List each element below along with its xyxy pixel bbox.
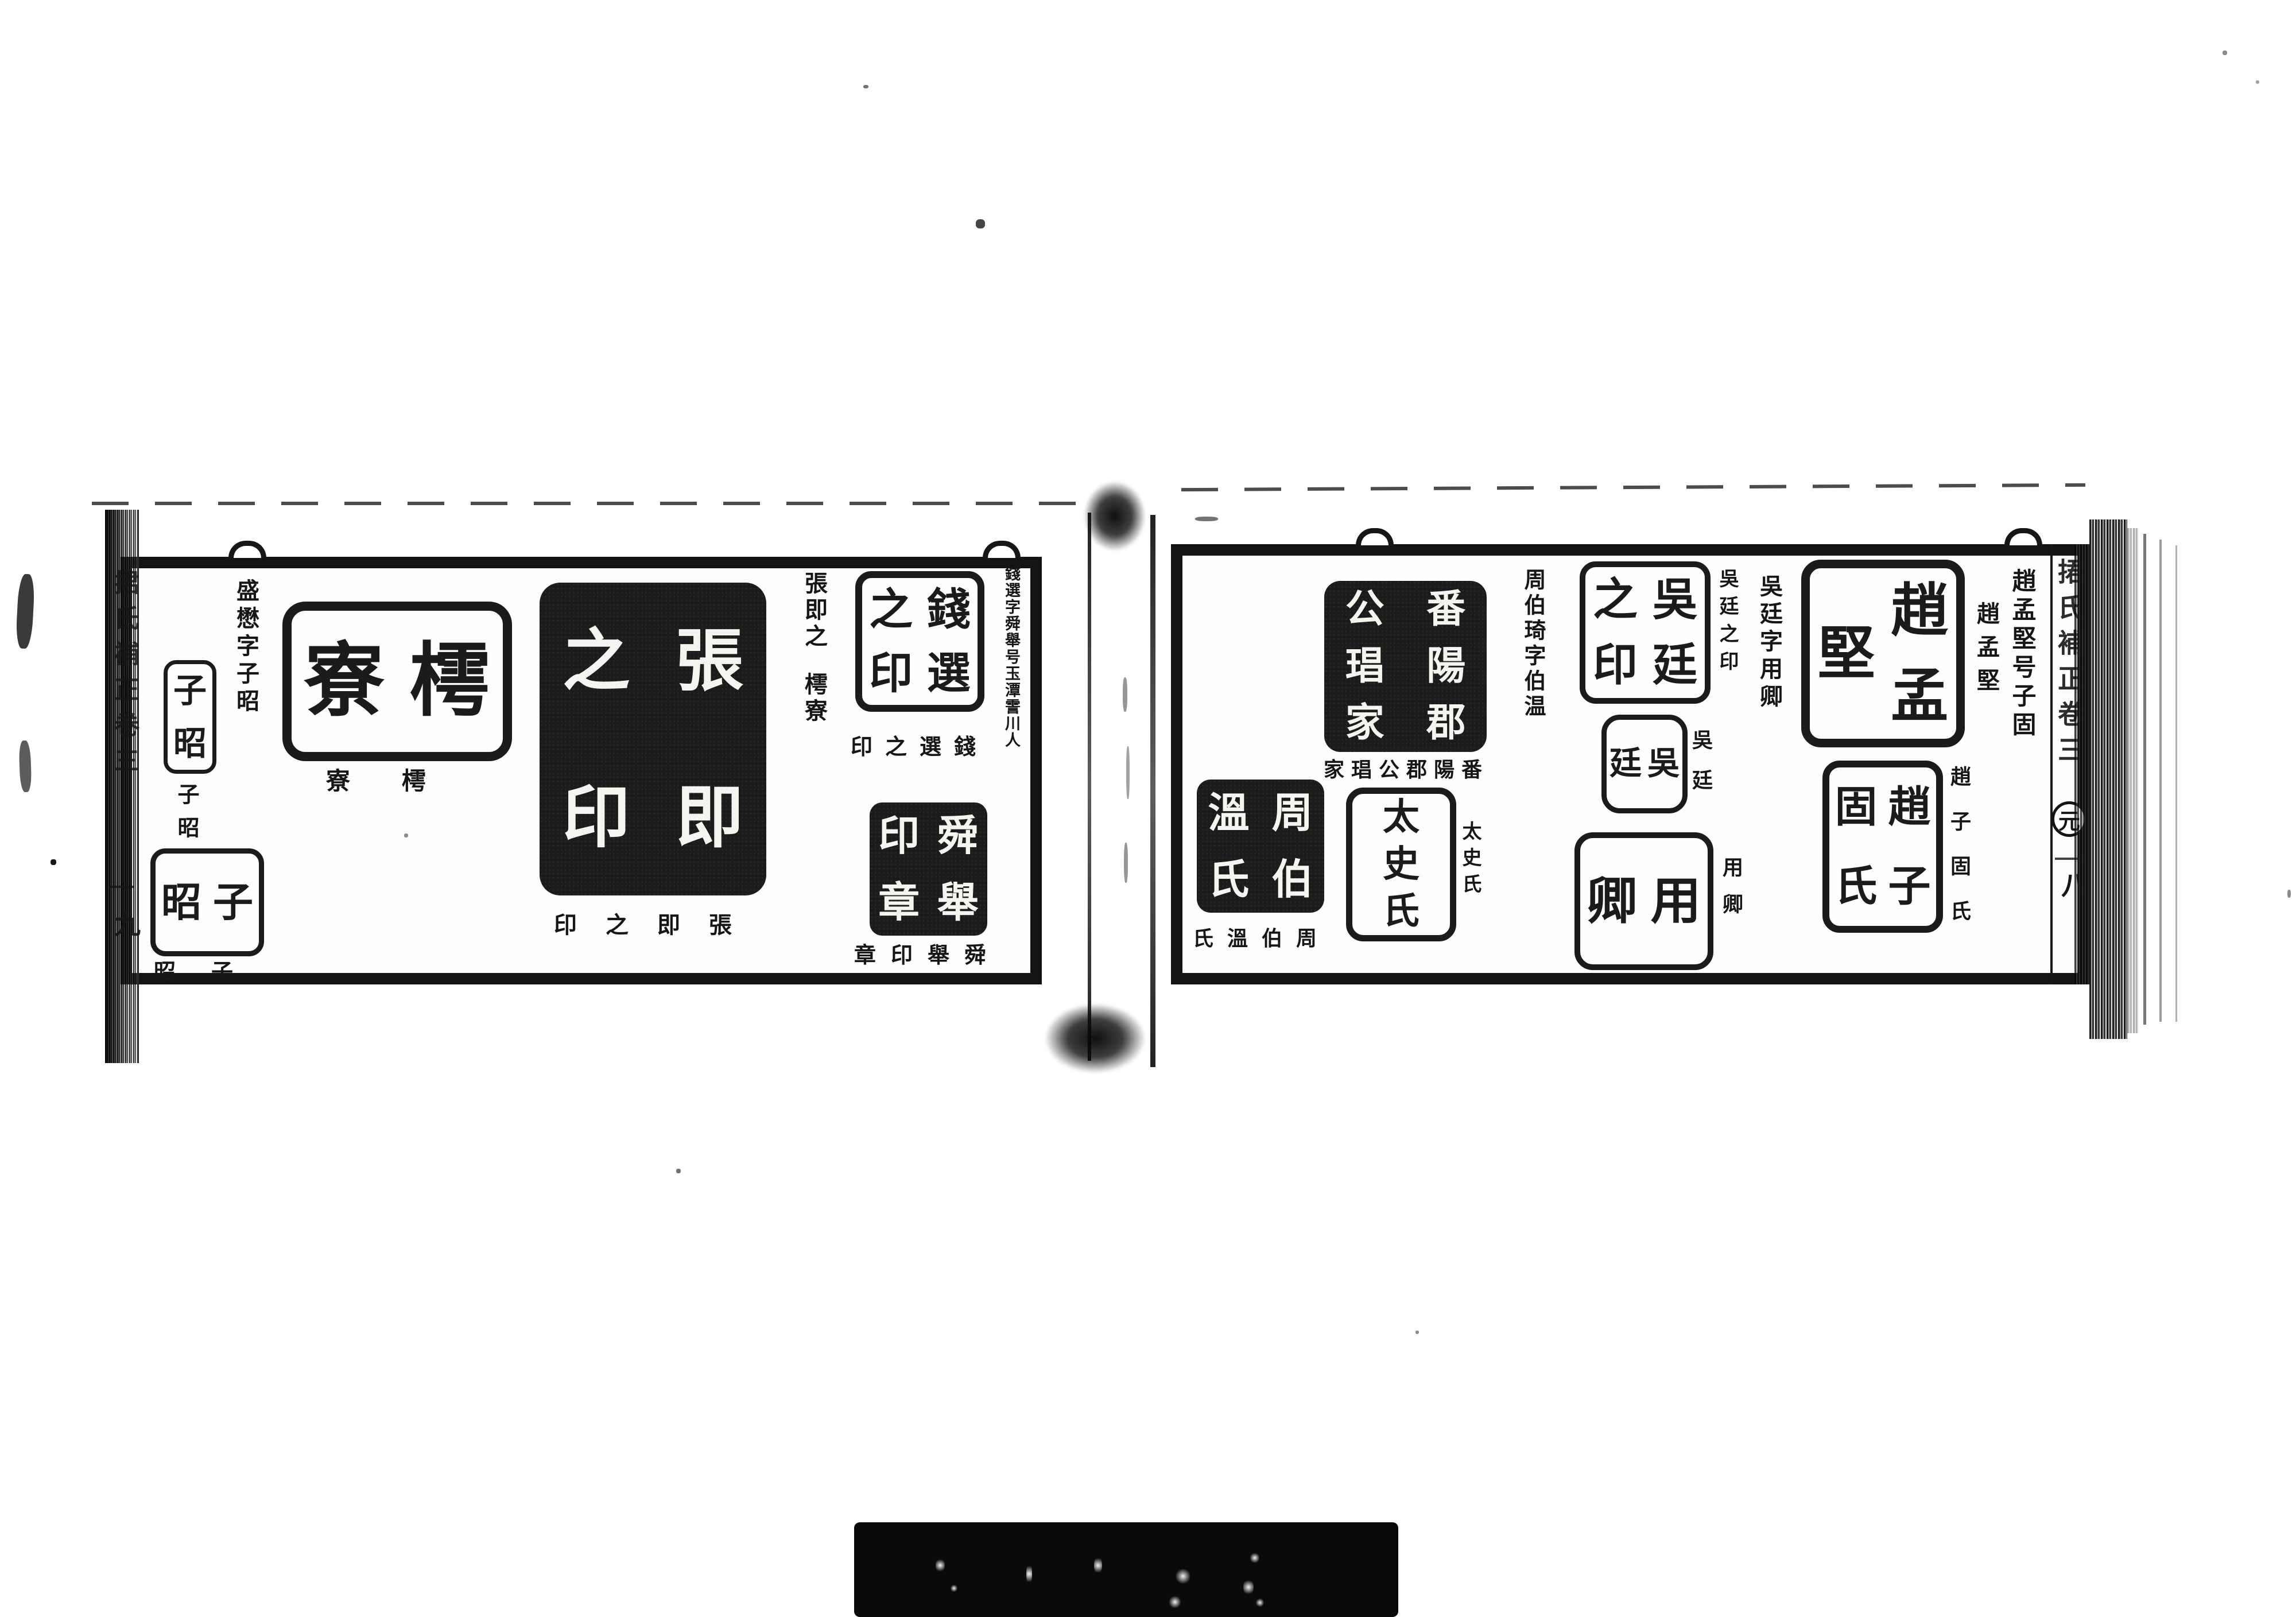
seal-face-column: 印章	[870, 802, 929, 936]
left-page-tab-notch-2	[983, 541, 1021, 558]
seal-face-glyph: 史	[1383, 846, 1420, 883]
seal-yong-qing: 用卿	[1574, 832, 1713, 970]
seal-face-glyph: 選	[927, 652, 971, 695]
seal-face-glyph: 廷	[1653, 643, 1697, 688]
seal-face-column: 公琩家	[1324, 581, 1406, 752]
seal-tai-shi-shi: 太史氏	[1346, 788, 1456, 941]
seal-face-glyph: 伯	[1271, 859, 1313, 900]
seal-face-column: 廷	[1607, 720, 1645, 808]
note-qian-xuan: 錢選字舜舉号玉潭霅川人	[1003, 565, 1019, 749]
seal-face-glyph: 公	[1345, 590, 1384, 629]
seal-wu-ting: 吳廷	[1601, 715, 1688, 813]
scan-speck	[863, 85, 868, 88]
note-zhang-jizhi: 張即之樗寮	[802, 571, 825, 725]
gutter-fold-line-right	[1150, 515, 1155, 1067]
right-page-tab-notch-2	[2004, 528, 2042, 545]
seal-face-glyph: 吳	[1653, 577, 1697, 622]
underleaf-edge-1	[2143, 534, 2146, 1025]
seal-face-column: 趙子	[1883, 767, 1936, 926]
caption-zi-zhao-tall: 子昭	[176, 783, 197, 850]
gutter-smudge-1	[1123, 677, 1127, 712]
seal-face-glyph: 孟	[1891, 668, 1948, 725]
seal-face-glyph: 舉	[937, 882, 979, 923]
seal-face-glyph: 錢	[927, 588, 971, 631]
gutter-smudge-2	[1126, 746, 1130, 799]
seal-face-column: 樗	[397, 611, 503, 752]
caption-zhou-bowen-shi: 氏溫伯周	[1193, 929, 1331, 949]
seal-zi-zhao-tall: 子昭	[164, 660, 216, 774]
seal-face-glyph: 郡	[1426, 704, 1465, 743]
seal-fanyang-jungong-jia: 番陽郡公琩家	[1324, 581, 1487, 752]
seal-face-column: 昭	[156, 854, 207, 951]
seal-face-glyph: 印	[563, 784, 630, 851]
seal-face-glyph: 廷	[1609, 748, 1642, 780]
seal-face-glyph: 印	[869, 652, 913, 695]
scan-speck	[1195, 517, 1218, 521]
seal-face-glyph: 樗	[410, 641, 490, 722]
caption-zhang-jizhi-yin: 印之即張	[554, 914, 755, 937]
seal-face-glyph: 氏	[1208, 859, 1249, 900]
seal-face-glyph: 之	[1593, 577, 1638, 622]
note-zhang-jizhi-name: 張即之	[801, 571, 827, 650]
note-zhou-boqi: 周伯琦字伯温	[1522, 568, 1544, 720]
caption-wu-ting-zhi-yin: 吳廷之印	[1717, 568, 1737, 678]
seal-face-glyph: 張	[676, 627, 743, 695]
caption-chu-liao: 寮樗	[321, 769, 482, 793]
seal-face-column: 子昭	[168, 664, 212, 770]
seal-face-glyph: 用	[1650, 876, 1701, 926]
note-sheng-mao: 盛懋字子昭	[234, 579, 257, 716]
seal-face-column: 之印	[540, 583, 653, 895]
seal-face-column: 溫氏	[1197, 780, 1261, 913]
label-bar-speck	[1256, 1598, 1264, 1607]
seal-face-glyph: 周	[1271, 792, 1313, 833]
seal-face-column: 張即	[653, 583, 767, 895]
gutter-shadow-over-strip	[2074, 544, 2089, 984]
seal-face-glyph: 舜	[937, 815, 979, 856]
underleaf-edge-3	[2175, 545, 2177, 1022]
seal-face-column: 吳	[1645, 720, 1682, 808]
label-bar-speck	[1094, 1556, 1102, 1575]
seal-face-glyph: 子	[213, 882, 253, 922]
seal-face-glyph: 固	[1835, 786, 1878, 828]
caption-zi-zhao-square: 昭子	[154, 961, 269, 983]
seal-face-glyph: 昭	[173, 727, 207, 760]
seal-face-column: 寮	[292, 611, 397, 752]
gutter-ink-blob-bottom	[1045, 1003, 1146, 1073]
seal-face-column: 趙孟	[1883, 568, 1957, 739]
seal-face-column: 之印	[1585, 567, 1645, 698]
seal-face-column: 太史氏	[1352, 794, 1450, 935]
seal-face-column: 卿	[1580, 838, 1644, 964]
seal-face-glyph: 寮	[304, 641, 385, 722]
caption-qian-xuan-zhi-yin: 印之選錢	[851, 736, 988, 758]
caption-fanyang-jungong-jia: 家琩公郡陽番	[1320, 760, 1492, 781]
note-wu-ting: 吳廷字用卿	[1758, 574, 1781, 712]
seal-zhou-bowen-shi: 周伯溫氏	[1197, 780, 1324, 913]
label-bar-speck	[951, 1584, 957, 1592]
bottom-label-bar	[854, 1522, 1398, 1617]
left-strip-divider	[109, 886, 134, 888]
caption-zhao-mengjian: 趙孟堅	[1975, 602, 1998, 701]
seal-album-scan: 捃氏補正卷三 九 錢選字舜舉号玉潭霅川人 錢選之印 印之選錢 舜舉印章 章印舉舜…	[0, 0, 2296, 1617]
seal-face-glyph: 之	[563, 627, 630, 695]
caption-wu-ting: 吳廷	[1690, 729, 1711, 809]
label-bar-speck	[936, 1558, 945, 1573]
seal-zhang-jizhi-yin: 張即之印	[540, 583, 766, 895]
right-strip-divider-line	[2050, 544, 2053, 984]
note-zhang-jizhi-hao: 樗寮	[802, 672, 825, 725]
seal-face-column: 子	[207, 854, 259, 951]
seal-face-glyph: 家	[1345, 704, 1384, 743]
gutter-smudge-3	[1124, 843, 1128, 883]
label-bar-speck	[1169, 1596, 1181, 1608]
seal-face-glyph: 溫	[1208, 792, 1249, 833]
seal-face-glyph: 之	[869, 588, 913, 631]
label-bar-speck	[1250, 1552, 1259, 1564]
seal-face-glyph: 陽	[1426, 647, 1465, 686]
right-binding-streaks	[2089, 519, 2127, 1039]
scan-speck	[2256, 80, 2259, 84]
scan-speck	[15, 573, 36, 649]
seal-face-glyph: 趙	[1888, 786, 1931, 828]
seal-face-glyph: 番	[1426, 590, 1465, 629]
right-page-tab-notch-1	[1356, 528, 1394, 545]
label-bar-speck	[1026, 1562, 1032, 1585]
note-zhao-mengjian: 趙孟堅号子固	[2010, 568, 2034, 740]
seal-shun-ju-yin-zhang: 舜舉印章	[870, 802, 987, 936]
seal-face-glyph: 印	[1593, 643, 1638, 688]
right-binding-streaks-light	[2127, 528, 2139, 1033]
seal-face-glyph: 堅	[1818, 625, 1875, 683]
caption-shun-ju-yin-zhang: 章印舉舜	[854, 944, 998, 966]
seal-face-glyph: 卿	[1587, 876, 1637, 926]
scan-speck	[51, 859, 56, 865]
seal-face-glyph: 趙	[1891, 582, 1948, 639]
seal-face-column: 吳廷	[1645, 567, 1705, 698]
seal-face-glyph: 子	[173, 674, 207, 707]
seal-face-glyph: 昭	[161, 882, 201, 922]
caption-tai-shi-shi: 太史氏	[1460, 821, 1480, 900]
seal-face-glyph: 吳	[1647, 748, 1680, 780]
seal-qian-xuan-zhi-yin: 錢選之印	[855, 571, 984, 712]
gutter-fold-line-left	[1088, 513, 1091, 1061]
seal-face-column: 錢選	[920, 578, 978, 705]
left-page-number: 九	[113, 910, 139, 937]
seal-face-column: 之印	[862, 578, 920, 705]
seal-face-glyph: 氏	[1835, 865, 1878, 908]
seal-face-glyph: 章	[878, 882, 920, 923]
scan-speck	[676, 1169, 681, 1173]
scan-speck	[2223, 51, 2227, 55]
seal-face-column: 用	[1644, 838, 1708, 964]
seal-wu-ting-zhi-yin: 吳廷之印	[1580, 561, 1711, 704]
leaf-edge-dashes-left	[92, 502, 1085, 505]
scan-speck	[2287, 890, 2291, 898]
scan-speck	[404, 833, 408, 837]
seal-face-glyph: 即	[676, 784, 743, 851]
seal-face-column: 舜舉	[929, 802, 988, 936]
label-bar-speck	[1176, 1568, 1190, 1584]
seal-zhao-mengjian: 趙孟堅	[1801, 560, 1965, 747]
underleaf-edge-2	[2159, 540, 2162, 1022]
caption-yong-qing: 用卿	[1720, 856, 1741, 930]
label-bar-speck	[1243, 1579, 1254, 1596]
seal-face-glyph: 印	[878, 815, 920, 856]
scan-speck	[1415, 1331, 1419, 1334]
scan-speck	[18, 740, 32, 793]
caption-zhao-zigu-shi: 趙子固氏	[1948, 766, 1969, 945]
left-running-title: 捃氏補正卷三	[111, 569, 137, 783]
gutter-ink-blob-top	[1084, 481, 1146, 551]
leaf-edge-dashes-right	[1181, 483, 2085, 491]
seal-face-glyph: 氏	[1383, 893, 1420, 930]
seal-face-glyph: 琩	[1345, 647, 1384, 686]
seal-face-glyph: 子	[1888, 865, 1931, 908]
seal-face-glyph: 太	[1383, 799, 1420, 836]
seal-face-column: 番陽郡	[1406, 581, 1487, 752]
seal-face-column: 固氏	[1829, 767, 1883, 926]
seal-zhao-zigu-shi: 趙子固氏	[1822, 761, 1943, 933]
seal-face-column: 周伯	[1261, 780, 1324, 913]
seal-chu-liao: 樗寮	[282, 602, 512, 761]
seal-zi-zhao-square: 子昭	[150, 848, 264, 956]
seal-face-column: 堅	[1810, 568, 1883, 739]
left-page-tab-notch-1	[228, 541, 266, 558]
scan-speck	[976, 219, 985, 228]
